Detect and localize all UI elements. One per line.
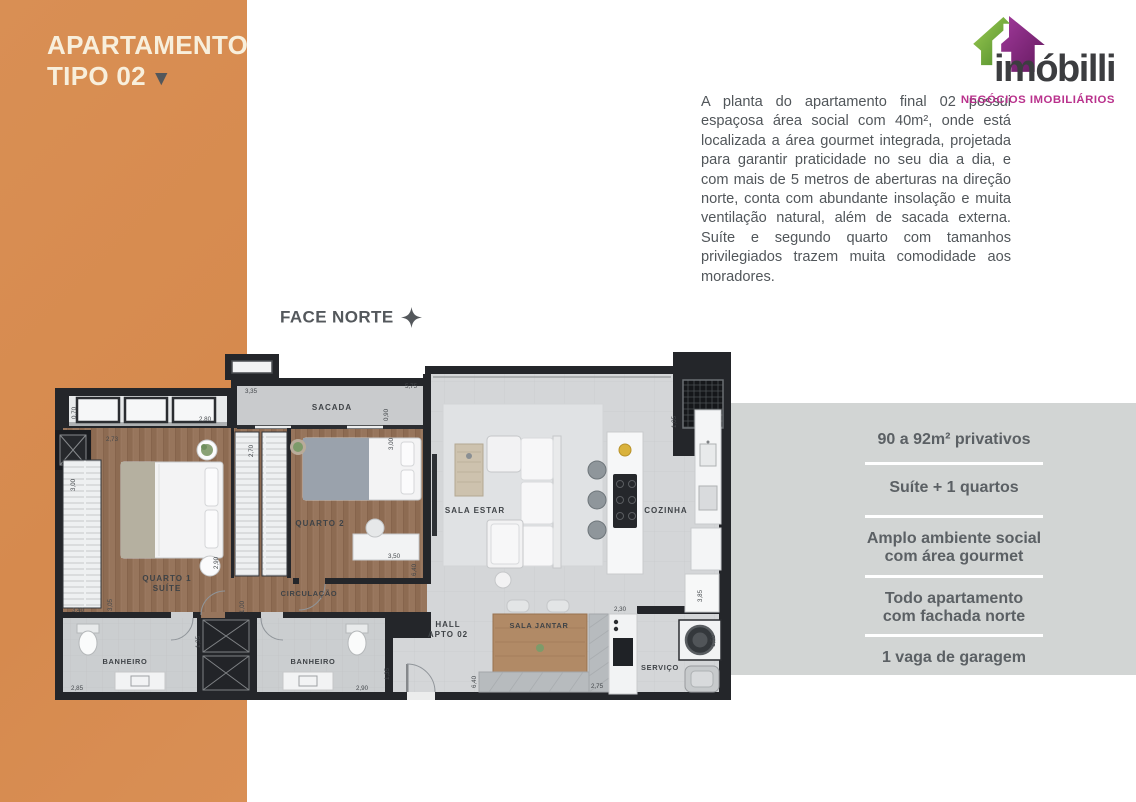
dimension-label: 3,00	[70, 478, 77, 491]
room-label-hall-apto: APTO 02	[428, 630, 468, 639]
dimension-label: 6,40	[411, 563, 418, 576]
room-label-banheiro1: BANHEIRO	[102, 657, 147, 666]
page-title-line1: APARTAMENTO	[47, 30, 248, 61]
compass-star-icon	[401, 307, 422, 328]
feature-fachada-norte: Todo apartamentocom fachada norte	[814, 578, 1094, 634]
dimension-label: 2,75	[591, 683, 604, 690]
dimension-label: 3,85	[697, 589, 704, 602]
feature-quartos: Suíte + 1 quartos	[814, 465, 1094, 515]
room-label-sacada: SACADA	[312, 403, 352, 412]
dimension-label: 3,50	[388, 553, 401, 560]
dimension-label: 0,70	[71, 406, 78, 419]
dimension-label: 1,50	[710, 634, 717, 647]
page-title: APARTAMENTO TIPO 02▼	[47, 30, 248, 94]
brand-logo: imóbilli NEGÓCIOS IMOBILIÁRIOS	[955, 8, 1115, 112]
room-label-sala-jantar: SALA JANTAR	[509, 621, 568, 630]
dimension-label: 3,40	[72, 607, 85, 614]
compass: FACE NORTE	[280, 307, 422, 331]
apartment-description: A planta do apartamento final 02 possui …	[701, 93, 1011, 287]
features-list: 90 a 92m² privativos Suíte + 1 quartos A…	[814, 403, 1094, 667]
dimension-label: 3,00	[388, 437, 395, 450]
room-label-quarto1: QUARTO 1	[142, 574, 191, 583]
dimension-label: 2,73	[106, 436, 119, 443]
feature-ambiente-social: Amplo ambiente socialcom área gourmet	[814, 518, 1094, 575]
page-title-line2: TIPO 02▼	[47, 61, 248, 94]
logo-tagline: NEGÓCIOS IMOBILIÁRIOS	[961, 94, 1115, 106]
dimension-label: 2,80	[199, 416, 212, 423]
dimension-label: 1,35	[195, 635, 202, 648]
dimension-label: 0,90	[383, 408, 390, 421]
down-triangle-icon: ▼	[151, 63, 172, 94]
compass-label: FACE NORTE	[280, 308, 394, 327]
dimension-label: 3,35	[245, 388, 258, 395]
dimension-label: 1,00	[239, 600, 246, 613]
room-label-cozinha: COZINHA	[644, 506, 687, 515]
dimension-label: 6,40	[471, 675, 478, 688]
dimension-label: 2,70	[248, 444, 255, 457]
room-label-hall: HALL	[435, 620, 460, 629]
feature-garagem: 1 vaga de garagem	[814, 637, 1094, 667]
room-label-servico: SERVIÇO	[641, 663, 679, 672]
dimension-label: 5,75	[405, 383, 418, 390]
floor-plan: SACADA QUARTO 1 SUÍTE QUARTO 2 CIRCULAÇÃ…	[55, 352, 731, 700]
room-label-quarto1-suite: SUÍTE	[153, 584, 182, 593]
room-label-sala-estar: SALA ESTAR	[445, 506, 505, 515]
room-label-circulacao: CIRCULAÇÃO	[281, 589, 338, 598]
dimension-label: 2,30	[614, 606, 627, 613]
room-label-quarto2: QUARTO 2	[295, 519, 344, 528]
logo-brand-text: imóbilli	[994, 50, 1115, 88]
dimension-label: 1,05	[671, 415, 678, 428]
room-label-banheiro2: BANHEIRO	[290, 657, 335, 666]
dimension-label: 1,35	[384, 667, 391, 680]
features-panel: 90 a 92m² privativos Suíte + 1 quartos A…	[731, 403, 1136, 675]
dimension-label: 3,05	[107, 598, 114, 611]
feature-area: 90 a 92m² privativos	[814, 426, 1094, 462]
dimension-label: 2,90	[356, 685, 369, 692]
dimension-label: 2,85	[71, 685, 84, 692]
dimension-label: 2,90	[213, 556, 220, 569]
